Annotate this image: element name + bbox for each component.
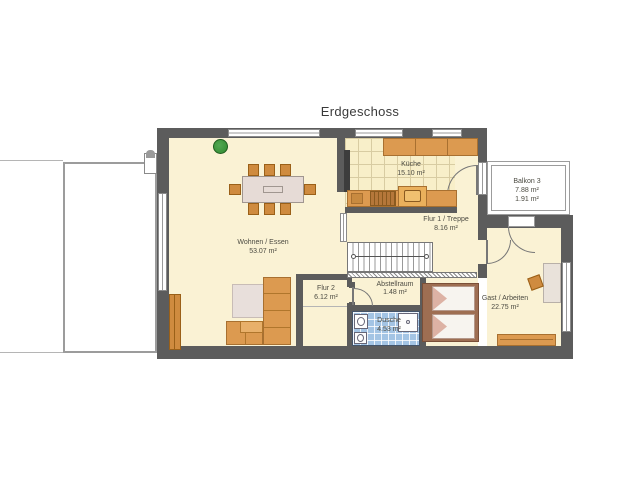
room-area: 4.53 m² [377,325,401,334]
sofa-cushion [240,321,263,333]
washbasin-bowl [357,317,365,326]
room-area: 15.10 m² [397,169,425,178]
dining-chair [280,164,291,176]
terrace [63,162,157,353]
living-cabinet [169,294,181,350]
window-right-gast [562,262,571,332]
room-area: 8.16 m² [423,224,469,233]
dining-table-centerpiece [263,186,283,193]
kitchen-stove-top [404,190,421,202]
room-label-balkon: Balkon 3 7.88 m² 1.91 m² [513,177,540,204]
staircase [347,242,433,272]
room-name: Abstellraum [377,281,414,289]
flur2-threshold [303,306,347,307]
kitchen-sink-drainer [370,191,396,206]
wall-kitchen-right-upper [478,128,487,162]
room-label-flur1: Flur 1 / Treppe 8.16 m² [423,215,469,233]
wall-kitchen-right-lower [478,195,487,240]
sofa-vertical [263,277,291,345]
kitchen-counter-divider-2 [447,138,448,156]
window-top-kitchen-1 [355,129,403,137]
room-name: Wohnen / Essen [237,238,288,247]
shower-drain [406,320,410,324]
room-label-abstellraum: Abstellraum 1.48 m² [377,281,414,297]
floor-plan: Erdgeschoss [0,0,640,480]
room-area: 6.12 m² [314,293,338,302]
dining-chair [264,164,275,176]
wall-kitchen-bottom [345,207,457,213]
stair-glass-partition [340,213,347,242]
window-top-living [228,129,320,137]
dining-chair [280,203,291,215]
kitchen-counter-divider-1 [415,138,416,156]
window-left-living [158,193,167,291]
kitchen-tall-unit [344,150,350,192]
staircase-marker-end [424,254,429,259]
room-label-kueche: Küche 15.10 m² [397,160,425,178]
section-line-top [0,160,63,161]
room-label-flur2: Flur 2 6.12 m² [314,284,338,302]
room-name: Küche [397,160,425,169]
dining-chair [264,203,275,215]
room-name: Flur 1 / Treppe [423,215,469,224]
room-area: 53.07 m² [237,247,288,256]
understair-hatch-wall [347,272,477,278]
rug [232,284,265,318]
kitchen-cabinet-handle [351,193,363,204]
balcony-door-gast-threshold [508,216,535,227]
dining-chair [229,184,241,195]
desk [543,263,561,303]
plant-icon [213,139,228,154]
dining-chair [248,203,259,215]
room-area: 22.75 m² [482,303,528,312]
dining-chair [304,184,316,195]
wall-bottom [157,346,573,359]
downpipe-cap [146,150,155,158]
room-label-wohnen: Wohnen / Essen 53.07 m² [237,238,288,256]
gast-sideboard-line [500,339,553,340]
wall-flur2-left [296,274,303,346]
page-title: Erdgeschoss [321,104,399,119]
staircase-walkline [352,256,428,257]
dining-chair [248,164,259,176]
balcony-door-frame-kitchen [478,162,487,195]
room-name: Flur 2 [314,284,338,293]
window-top-kitchen-2 [432,129,462,137]
room-label-dusche: Dusche 4.53 m² [377,316,401,334]
room-name: Gast / Arbeiten [482,294,528,303]
room-area: 7.88 m² [513,186,540,195]
wall-flur2-top [296,274,347,280]
gast-sideboard [497,334,556,346]
staircase-marker-start [351,254,356,259]
toilet-bowl [357,334,364,342]
room-name: Balkon 3 [513,177,540,186]
living-cabinet-line [174,294,175,350]
room-area: 1.48 m² [377,289,414,297]
room-label-gast: Gast / Arbeiten 22.75 m² [482,294,528,312]
kitchen-counter-top [383,138,478,156]
room-area-2: 1.91 m² [513,195,540,204]
room-name: Dusche [377,316,401,325]
wall-gast-left-stub [478,264,487,278]
